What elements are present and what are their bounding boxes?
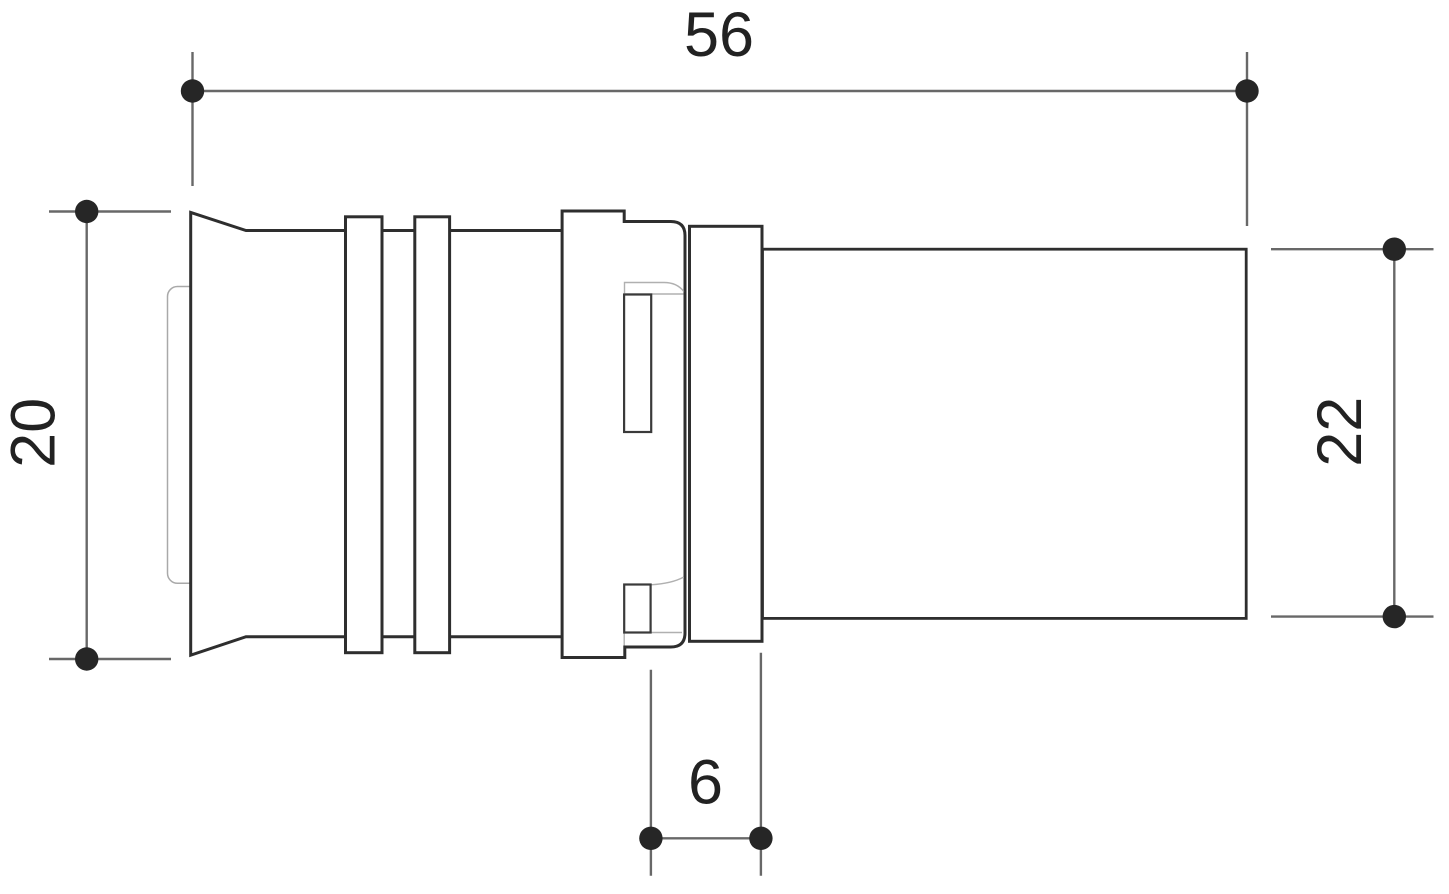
svg-text:20: 20 [0, 398, 69, 468]
svg-text:56: 56 [684, 0, 754, 70]
svg-text:22: 22 [1305, 397, 1375, 467]
svg-text:6: 6 [688, 747, 723, 817]
